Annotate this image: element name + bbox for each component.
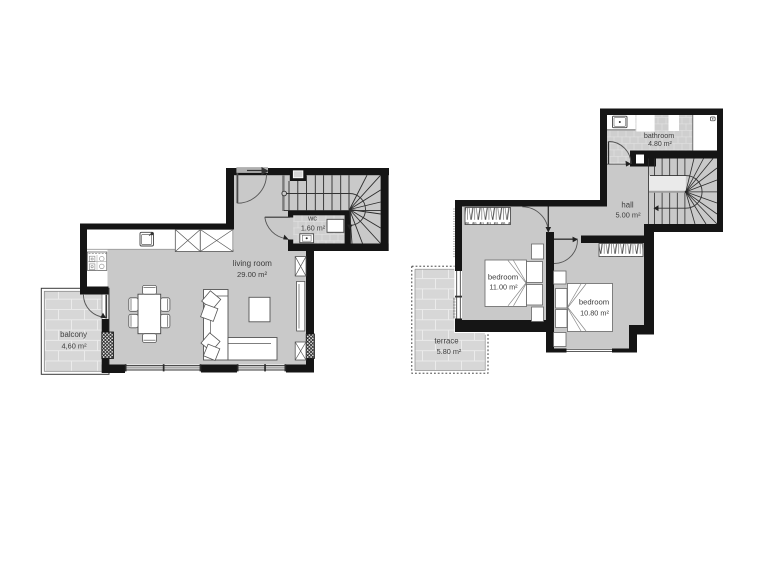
svg-text:11.00 m²: 11.00 m² [489, 283, 518, 292]
svg-text:4,60 m²: 4,60 m² [61, 341, 87, 350]
svg-text:hall: hall [621, 201, 633, 210]
svg-text:bedroom: bedroom [488, 272, 518, 281]
svg-text:5.00 m²: 5.00 m² [615, 210, 641, 219]
svg-text:29.00 m²: 29.00 m² [237, 270, 267, 279]
svg-text:bathroom: bathroom [644, 131, 674, 140]
svg-text:bedroom: bedroom [579, 298, 609, 307]
svg-text:balcony: balcony [60, 330, 87, 339]
svg-text:wc: wc [307, 214, 317, 223]
svg-text:terrace: terrace [434, 337, 458, 346]
svg-text:living room: living room [233, 259, 272, 268]
svg-text:5.80 m²: 5.80 m² [437, 347, 462, 356]
svg-text:10.80 m²: 10.80 m² [580, 309, 609, 318]
svg-text:4.80 m²: 4.80 m² [648, 141, 672, 148]
svg-text:1.60 m²: 1.60 m² [301, 224, 326, 233]
